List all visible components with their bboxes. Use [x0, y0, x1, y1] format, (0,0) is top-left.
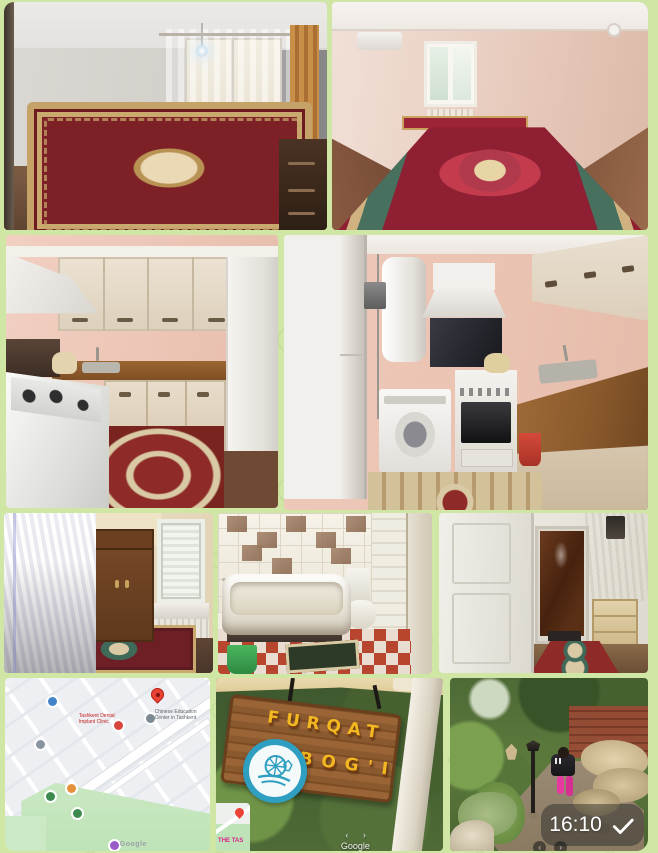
- kettle: [484, 353, 509, 372]
- air-conditioner: [357, 32, 401, 50]
- wall-meter: [606, 516, 625, 538]
- stove-knobs: [460, 388, 512, 396]
- entrance-door: [540, 531, 584, 637]
- fridge-door-line: [340, 354, 362, 356]
- sink: [538, 359, 598, 384]
- white-door: [439, 513, 534, 673]
- wardrobe-top: [90, 531, 153, 550]
- person-pink-pants: [557, 776, 564, 794]
- map-marker: [67, 784, 76, 793]
- map-marker: [36, 740, 45, 749]
- brown-tile: [346, 516, 366, 532]
- oven-drawer: [461, 449, 513, 467]
- water-heater: [382, 257, 426, 362]
- map-park-area: [5, 816, 46, 851]
- google-watermark: Google: [341, 841, 370, 851]
- kettle: [52, 352, 76, 374]
- red-bucket: [519, 433, 541, 466]
- green-bucket: [227, 645, 257, 674]
- photo-hallway-entrance[interactable]: [439, 513, 648, 673]
- photo-garden-path[interactable]: ‹ › 16:10: [450, 678, 648, 851]
- brown-tile: [242, 545, 262, 561]
- kitchen-rug: [93, 426, 224, 508]
- brown-tile: [316, 532, 336, 548]
- brown-tile: [227, 516, 247, 532]
- nav-prev-icon[interactable]: ‹: [533, 841, 546, 851]
- foreground-rock: [450, 820, 494, 851]
- door-panel: [452, 593, 511, 664]
- map-label-education: Chinese Education Center in Tashkent: [155, 709, 205, 721]
- gas-meter: [364, 282, 386, 310]
- window: [424, 41, 478, 107]
- window-pane: [453, 47, 471, 100]
- door-frame: [4, 2, 14, 230]
- brown-tile: [272, 558, 292, 574]
- curtain-edge: [13, 513, 16, 673]
- sink: [82, 362, 120, 373]
- street-view-minimap[interactable]: THE TAS: [216, 803, 250, 851]
- dresser: [279, 139, 327, 230]
- door-shine: [554, 541, 569, 568]
- window-pane: [430, 47, 448, 100]
- bath-mat: [286, 639, 361, 673]
- photo-bedroom[interactable]: [332, 2, 648, 230]
- white-column: [390, 678, 443, 851]
- upper-cabinets: [58, 257, 238, 331]
- window-sill: [150, 603, 209, 619]
- bathtub-interior: [230, 582, 343, 616]
- bathtub: [222, 574, 350, 635]
- kitchen-rug: [368, 472, 543, 511]
- washer-door: [395, 412, 436, 457]
- washing-machine: [379, 389, 452, 472]
- brown-tile: [286, 516, 306, 532]
- window: [157, 519, 205, 602]
- photo-street-view-sign[interactable]: FURQAT BOG'I THE TAS ‹ › Google: [216, 678, 443, 851]
- photo-album-message: Tashkent Dental Implant Clinic Chinese E…: [0, 0, 658, 853]
- message-time: 16:10: [549, 813, 602, 837]
- cornice: [6, 246, 278, 257]
- map-marker: [48, 697, 57, 706]
- lamp-post: [531, 747, 535, 813]
- photo-hall-wardrobe[interactable]: [4, 513, 213, 673]
- faucet: [563, 345, 569, 361]
- gas-stove: [455, 370, 517, 472]
- lace-curtain: [4, 513, 96, 673]
- curtain-shadow: [4, 561, 96, 673]
- message-timestamp-badge: 16:10: [541, 804, 644, 846]
- sign-text-bogi: BOG'I: [298, 749, 393, 780]
- ceiling: [332, 2, 648, 31]
- google-watermark: Google: [120, 841, 147, 848]
- photo-kitchen-stove[interactable]: [6, 235, 278, 508]
- oven-window: [461, 402, 511, 443]
- map-label-clinic: Tashkent Dental Implant Clinic: [79, 713, 129, 725]
- photo-kitchen-washer[interactable]: [284, 235, 648, 510]
- street-view-nav-arrows[interactable]: ‹ ›: [345, 830, 372, 840]
- curtain-rod: [159, 33, 308, 36]
- photo-bathroom[interactable]: [218, 513, 432, 674]
- jacket-pattern: [555, 758, 563, 764]
- sign-text-furqat: FURQAT: [267, 707, 398, 745]
- vent: [607, 23, 621, 37]
- door-panel: [452, 523, 511, 585]
- brown-tile: [331, 548, 351, 564]
- countertop: [52, 361, 226, 380]
- carpet-medallion: [454, 146, 527, 195]
- washer-panel: [384, 396, 445, 404]
- lamp-head: [526, 740, 540, 751]
- stone-lantern: [505, 744, 517, 760]
- sent-check-icon: [610, 812, 636, 838]
- map-marker: [110, 841, 119, 850]
- minimap-label: THE TAS: [218, 838, 243, 844]
- photo-living-room[interactable]: [4, 2, 327, 230]
- wardrobe: [88, 529, 155, 642]
- photo-location-map[interactable]: Tashkent Dental Implant Clinic Chinese E…: [5, 678, 210, 851]
- faucet: [96, 347, 99, 361]
- doormat: [548, 631, 581, 641]
- location-pin-dot: [156, 693, 160, 697]
- person-pink-pants: [566, 776, 573, 796]
- refrigerator: [284, 235, 367, 499]
- toilet-bowl: [346, 600, 376, 629]
- red-carpet: [27, 102, 312, 230]
- shoe-shelf: [592, 599, 638, 647]
